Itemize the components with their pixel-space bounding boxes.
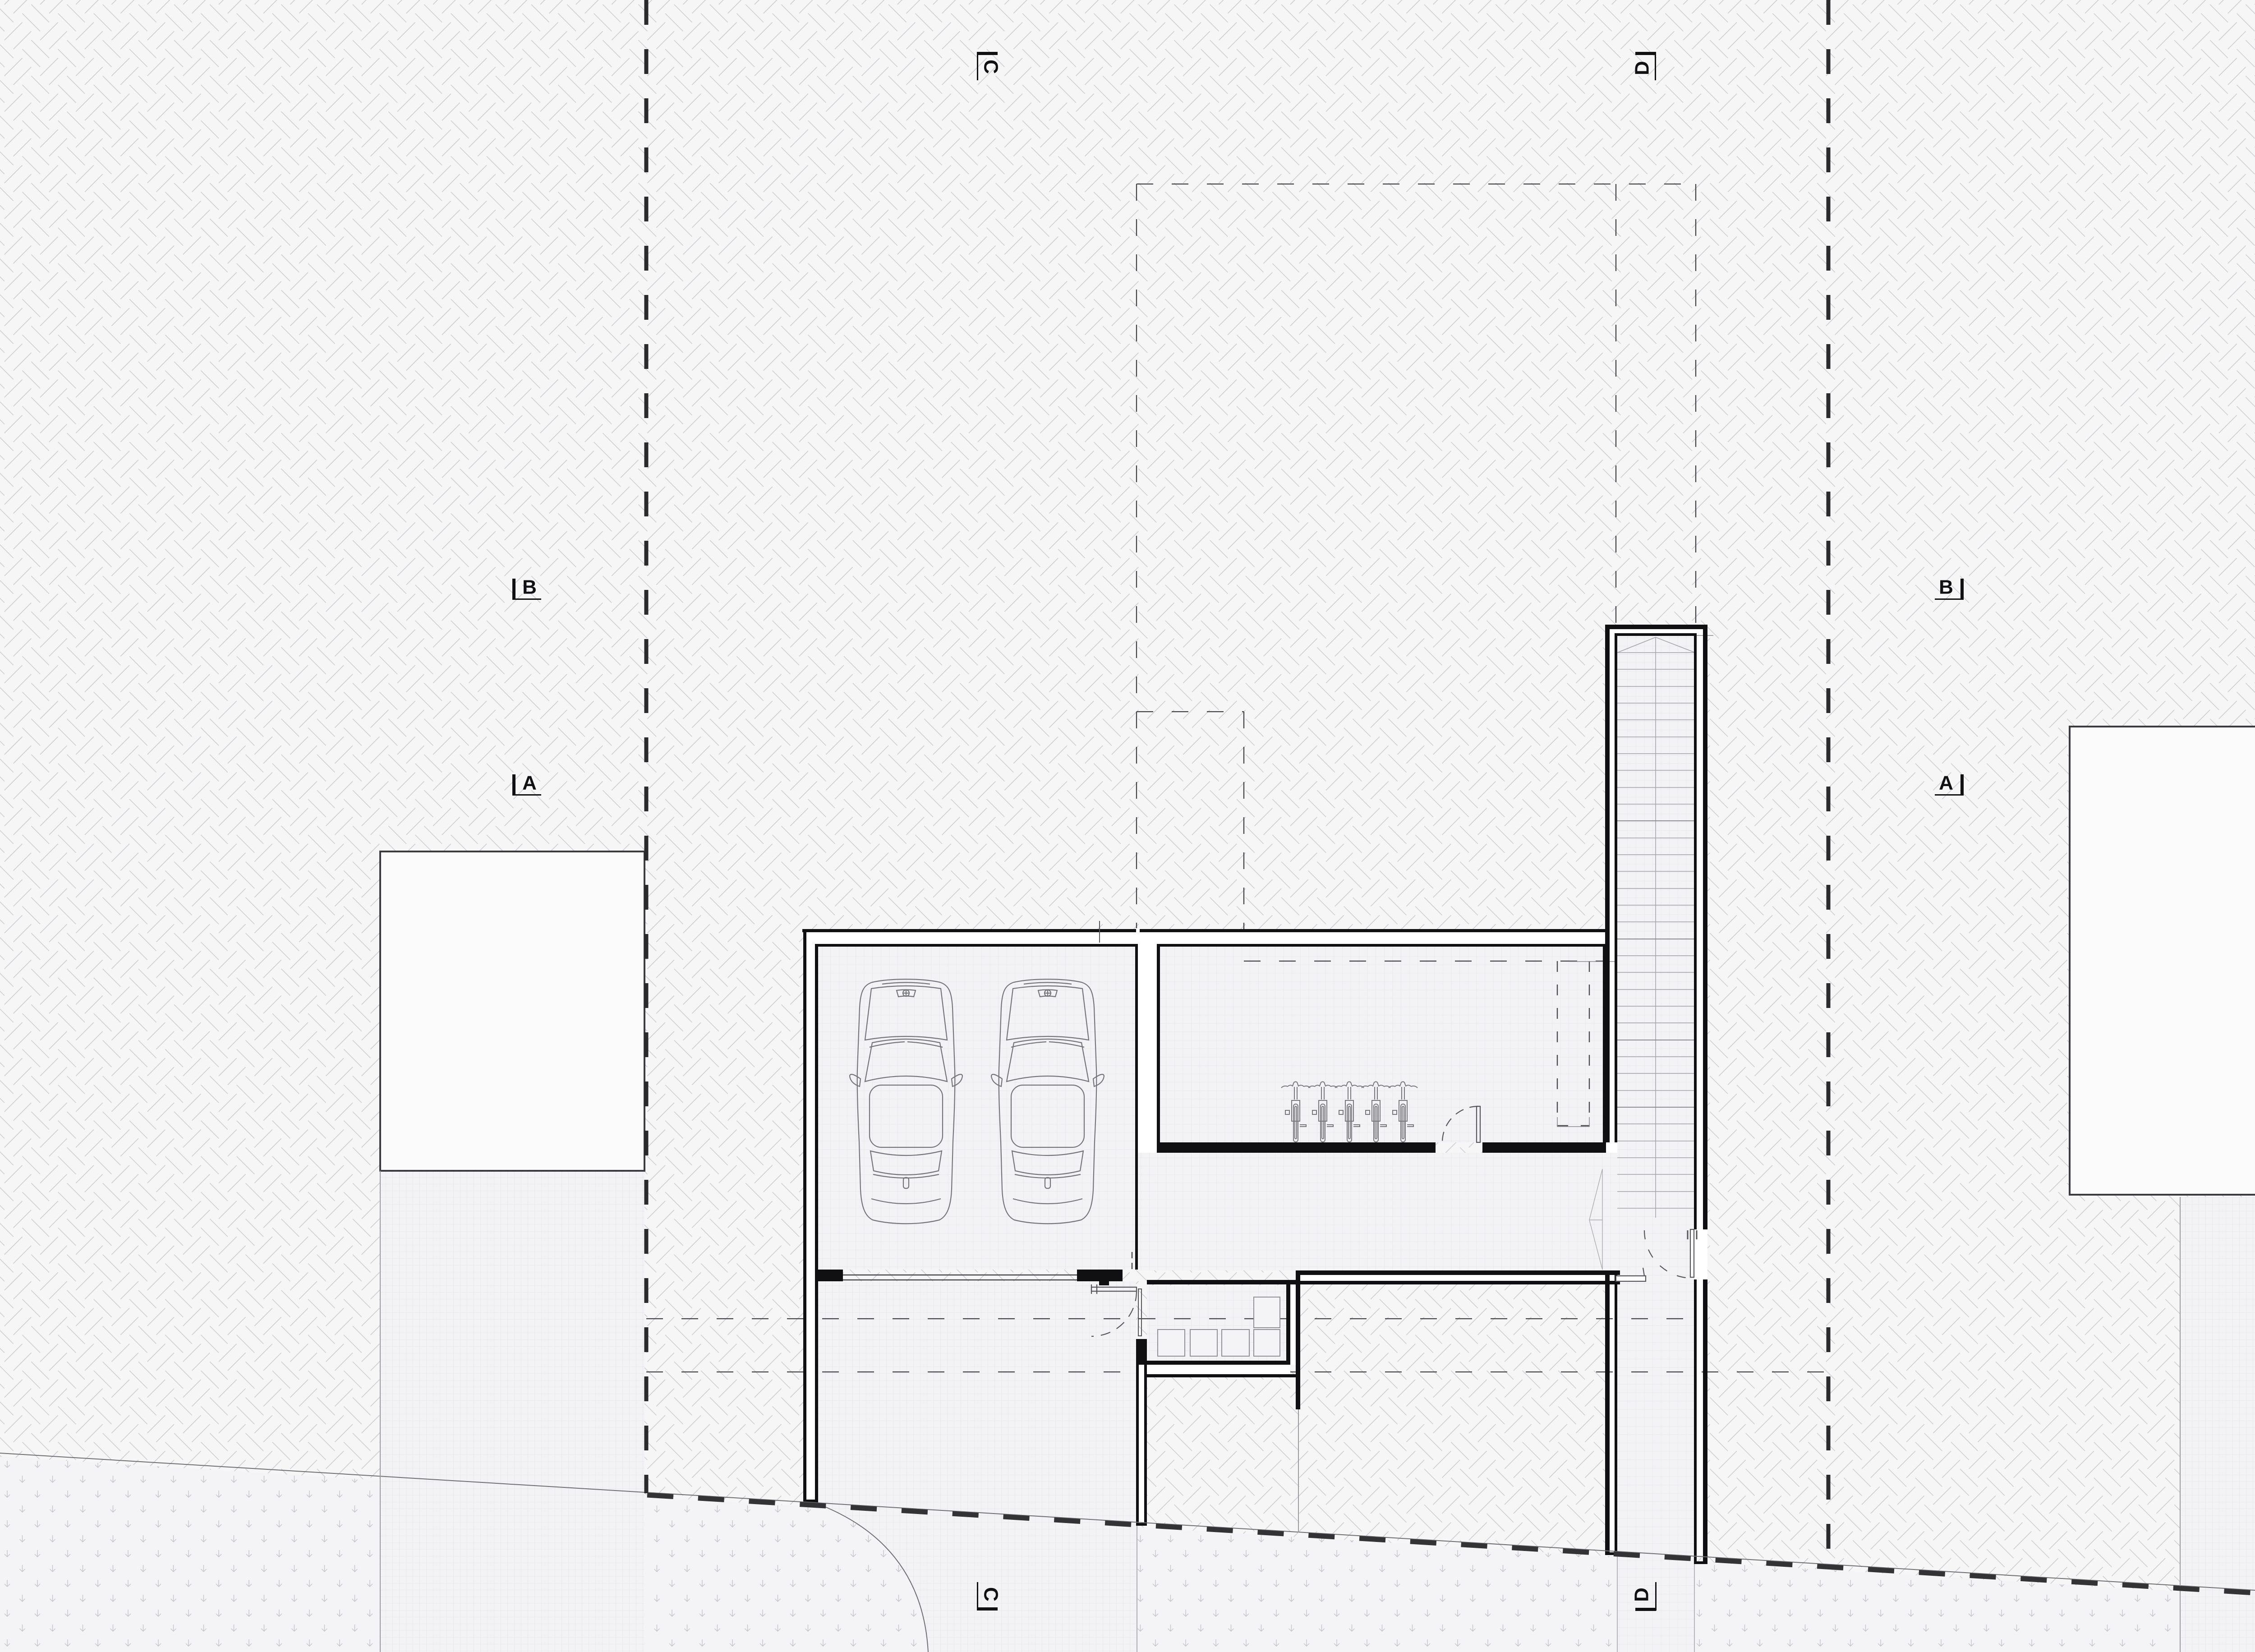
svg-text:C: C <box>980 60 1002 74</box>
svg-text:A: A <box>1939 772 1953 794</box>
svg-text:B: B <box>522 576 537 598</box>
svg-text:B: B <box>1939 576 1953 598</box>
svg-text:C: C <box>980 1587 1002 1601</box>
svg-text:D: D <box>1631 1588 1653 1602</box>
svg-text:A: A <box>522 772 537 794</box>
svg-text:D: D <box>1631 61 1653 75</box>
